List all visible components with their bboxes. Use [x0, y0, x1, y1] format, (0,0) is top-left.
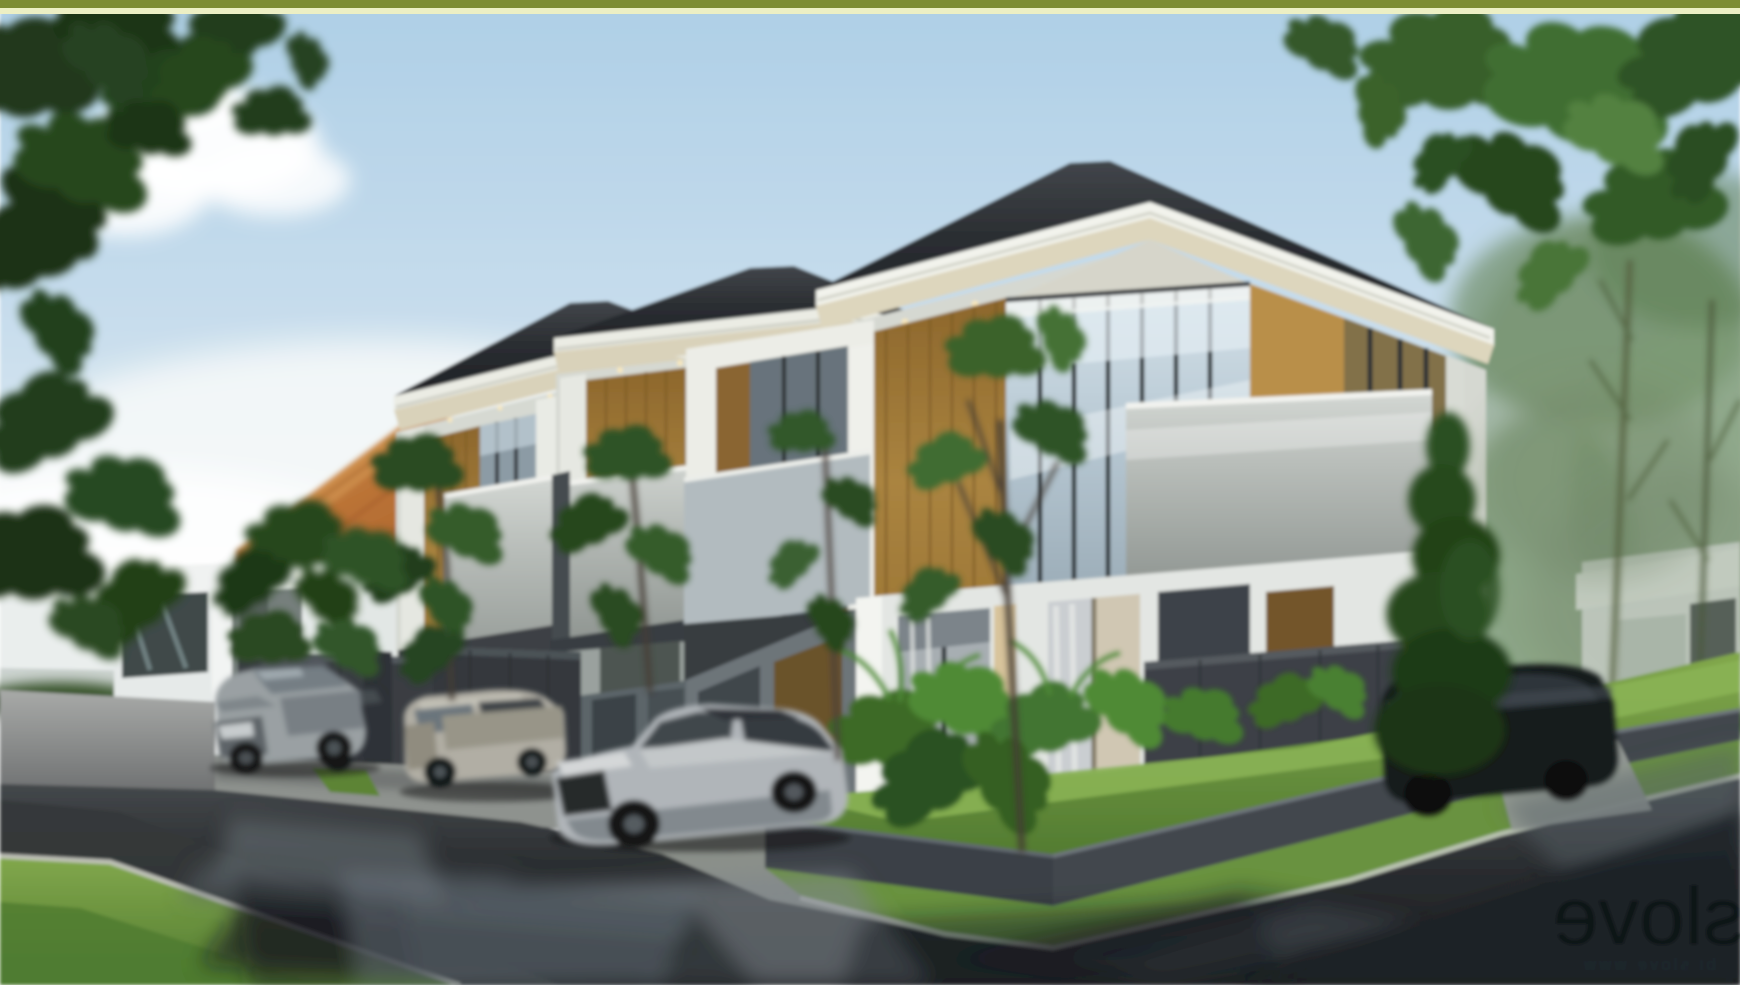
svg-text:bi.slove.www: bi.slove.www [1581, 955, 1716, 974]
svg-text:slove: slove [1553, 871, 1740, 962]
